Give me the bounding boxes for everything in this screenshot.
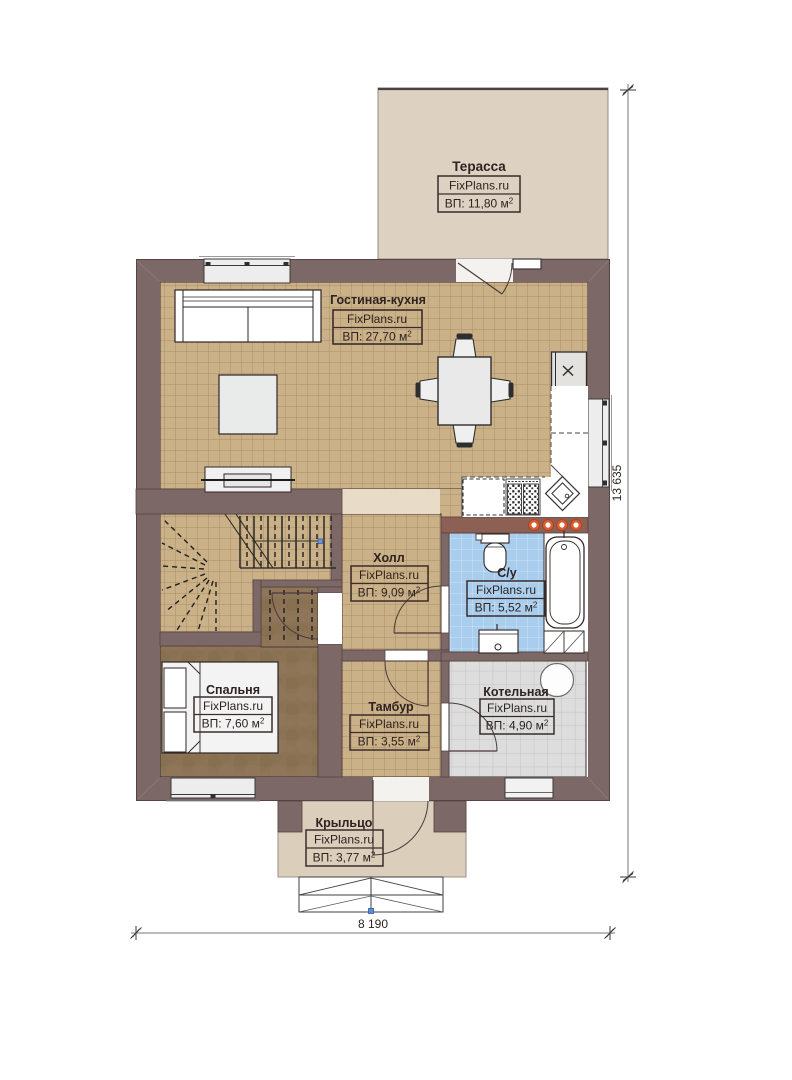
svg-text:FixPlans.ru: FixPlans.ru: [359, 568, 419, 582]
svg-text:13 635: 13 635: [610, 464, 624, 501]
svg-text:FixPlans.ru: FixPlans.ru: [487, 701, 547, 715]
svg-text:ВП: 5,52 м2: ВП: 5,52 м2: [475, 601, 538, 615]
svg-text:8 190: 8 190: [358, 917, 388, 931]
svg-text:ВП: 11,80 м2: ВП: 11,80 м2: [445, 197, 514, 211]
svg-text:FixPlans.ru: FixPlans.ru: [359, 717, 419, 731]
svg-text:FixPlans.ru: FixPlans.ru: [476, 583, 536, 597]
svg-text:ВП: 3,55 м2: ВП: 3,55 м2: [358, 735, 421, 749]
svg-text:Спальня: Спальня: [206, 683, 260, 697]
svg-text:ВП: 27,70 м2: ВП: 27,70 м2: [342, 330, 412, 344]
svg-text:FixPlans.ru: FixPlans.ru: [449, 179, 509, 193]
svg-text:ВП: 9,09 м2: ВП: 9,09 м2: [358, 586, 421, 600]
svg-text:Крыльцо: Крыльцо: [316, 816, 373, 830]
svg-text:ВП: 3,77 м2: ВП: 3,77 м2: [313, 851, 376, 865]
svg-text:Гостиная-кухня: Гостиная-кухня: [330, 293, 426, 307]
svg-text:FixPlans.ru: FixPlans.ru: [314, 833, 374, 847]
svg-text:ВП: 4,90 м2: ВП: 4,90 м2: [486, 719, 549, 733]
svg-text:Холл: Холл: [373, 551, 404, 565]
svg-text:С/у: С/у: [497, 566, 517, 580]
svg-text:Терасса: Терасса: [452, 159, 506, 174]
svg-text:FixPlans.ru: FixPlans.ru: [347, 312, 407, 326]
svg-text:Котельная: Котельная: [483, 685, 548, 699]
svg-text:ВП: 7,60 м2: ВП: 7,60 м2: [202, 717, 265, 731]
svg-text:FixPlans.ru: FixPlans.ru: [203, 699, 263, 713]
svg-text:Тамбур: Тамбур: [368, 700, 414, 714]
